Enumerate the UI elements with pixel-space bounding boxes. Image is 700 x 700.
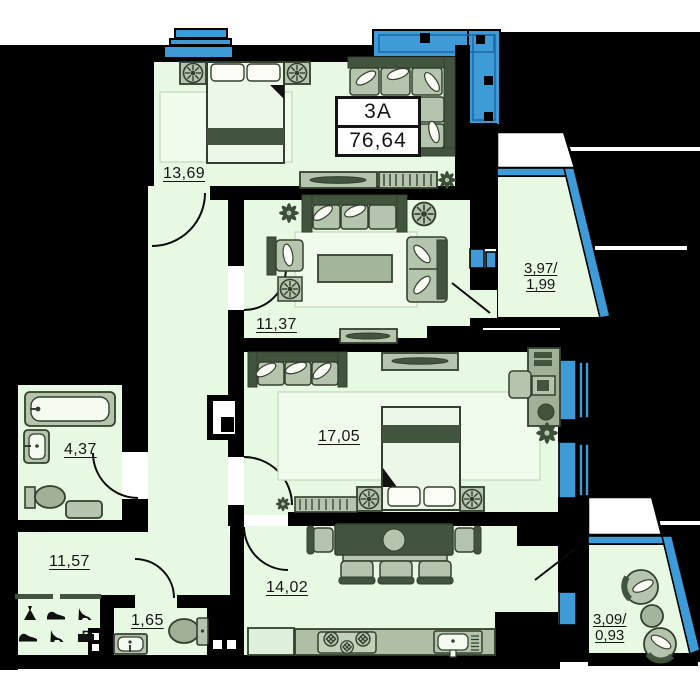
armchair-icon [267,237,303,275]
plant-icon [279,203,299,223]
chair-icon [455,526,481,554]
toilet-icon [25,486,65,508]
room-label-bedroom1: 13,69 [163,165,205,183]
room-label-wc: 1,65 [131,612,164,630]
chair-icon [339,561,375,584]
unit-code: 3A [338,99,418,128]
bathtub-icon [25,392,115,426]
unit-total-area: 76,64 [338,128,418,154]
sofa-icon [302,195,407,232]
sofa-icon [248,352,347,387]
lamp-icon [360,490,379,509]
room-label-living: 11,37 [256,316,297,334]
lamp-icon [184,64,203,83]
room-label-loggia-right: 3,97/ 1,99 [524,261,557,293]
chair-icon [307,526,333,554]
loggia-right-area-full: 3,97/ [524,261,557,277]
wardrobe-icon [295,497,357,512]
floor-plan: 13,69 11,37 17,05 4,37 11,57 1,65 14,02 … [0,0,700,700]
room-label-bedroom2: 17,05 [318,428,360,446]
dresser-icon [382,353,458,370]
coffee-table-icon [318,255,392,282]
chair-icon [417,561,453,584]
loggia-bottom-area-full: 3,09/ [593,612,626,628]
plant-icon [413,203,436,226]
room-label-kitchen: 14,02 [266,579,308,597]
double-bed-icon [207,62,284,163]
toilet-icon [169,618,208,645]
double-bed-icon [382,407,460,510]
sink-icon [114,634,147,654]
lamp-icon [463,490,482,509]
fridge-icon [248,628,294,655]
round-chair-icon [624,570,658,604]
plant-icon [536,422,558,444]
loggia-bottom-area-counted: 0,93 [593,628,626,644]
potted-plant-icon [278,277,302,301]
sink-icon [24,430,49,463]
loveseat-icon [407,237,447,302]
unit-info-box: 3A 76,64 [335,96,421,157]
round-chair-icon [644,628,676,661]
stove-icon [318,632,376,653]
window-frame-mark [478,268,490,276]
lamp-icon [288,64,307,83]
loggia-right-area-counted: 1,99 [524,277,557,293]
plant-icon [276,497,290,511]
desk-chair-icon [509,371,531,398]
room-label-bathroom: 4,37 [64,441,97,459]
kitchen-sink-icon [434,631,482,657]
window-bay-top-icon [164,29,233,58]
side-table-icon [641,605,663,627]
room-label-hallway: 11,57 [49,553,90,571]
desk-icon [528,348,560,426]
chair-icon [378,561,414,584]
shelf-icon [379,172,437,188]
tv-stand-icon [300,172,377,188]
cabinet-icon [66,501,102,518]
tv-stand-icon [340,329,397,343]
room-label-loggia-bottom: 3,09/ 0,93 [593,612,626,644]
plant-icon [438,171,456,189]
